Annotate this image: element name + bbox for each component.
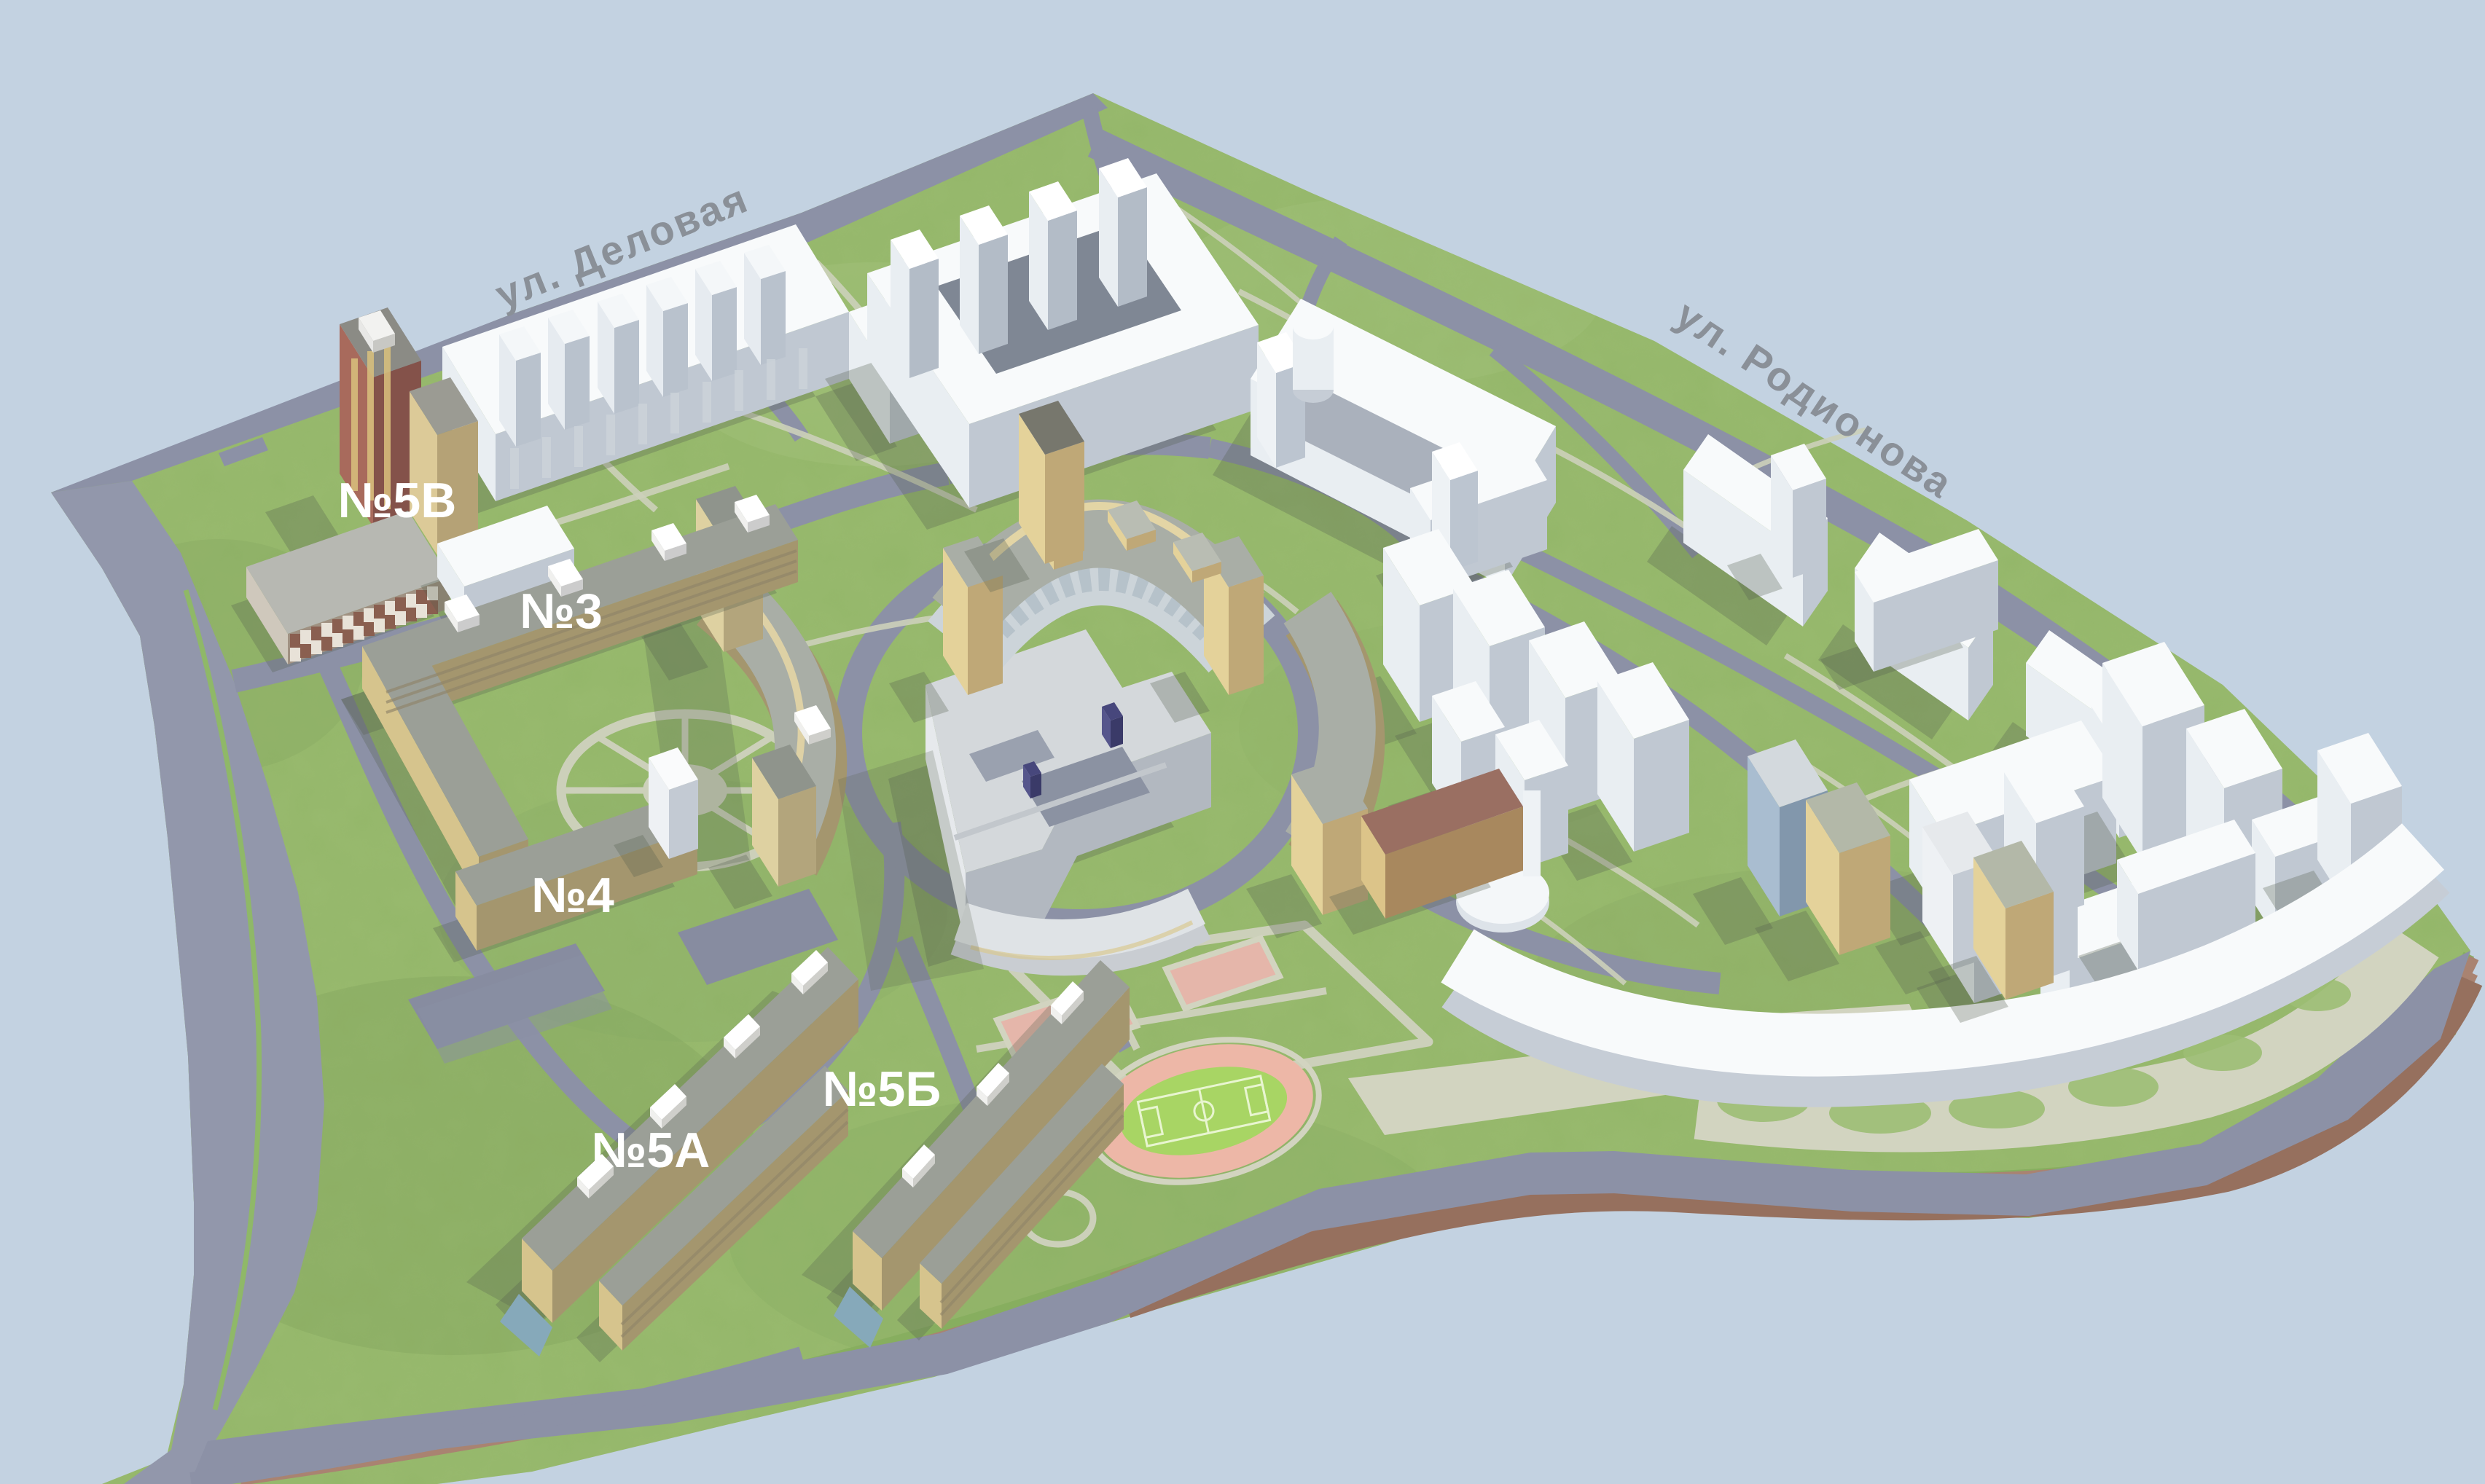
svg-text:№3: №3 [520,584,603,639]
svg-text:№5А: №5А [592,1123,711,1178]
svg-text:№5В: №5В [338,473,457,528]
svg-text:№5Б: №5Б [823,1061,942,1117]
svg-text:№4: №4 [531,868,614,923]
